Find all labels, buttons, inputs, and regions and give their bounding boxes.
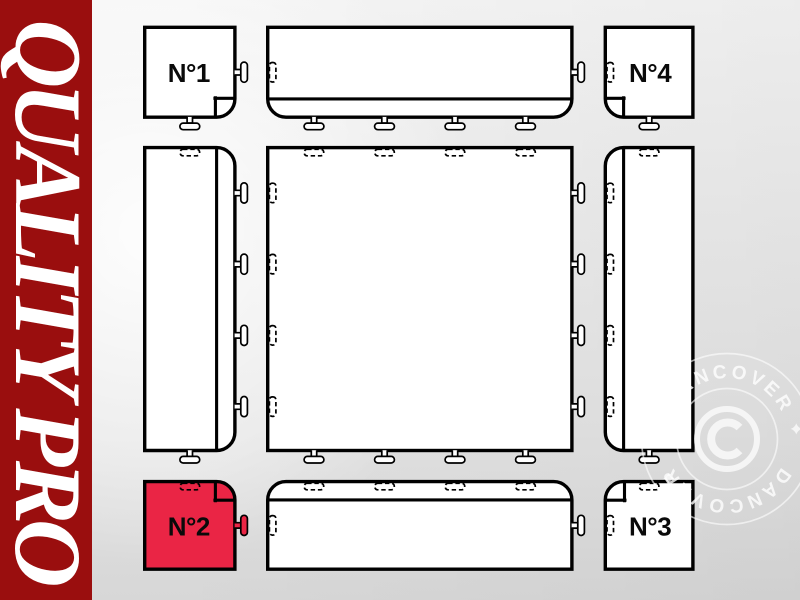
svg-text:N°2: N°2	[168, 511, 210, 541]
svg-text:N°3: N°3	[629, 511, 671, 541]
svg-text:N°4: N°4	[629, 58, 672, 88]
svg-text:QUALITY PRO: QUALITY PRO	[0, 20, 101, 588]
svg-text:N°1: N°1	[168, 58, 210, 88]
